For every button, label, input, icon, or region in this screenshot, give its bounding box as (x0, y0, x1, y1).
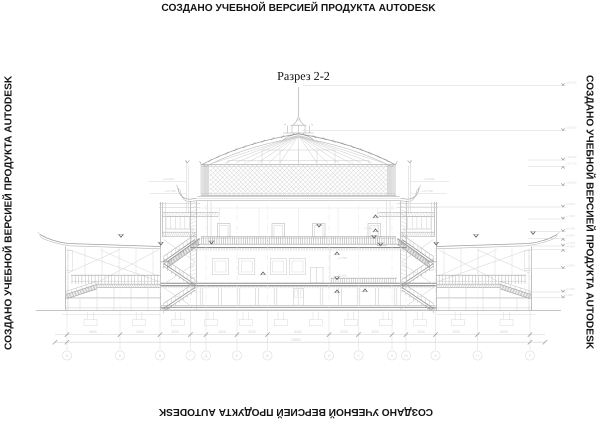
svg-text:И: И (328, 353, 331, 358)
svg-text:+7,400: +7,400 (566, 214, 576, 218)
svg-text:+12,750: +12,750 (164, 189, 176, 193)
svg-text:+21,000: +21,000 (566, 81, 577, 85)
svg-text:3200: 3200 (248, 330, 256, 334)
svg-text:+12,750: +12,750 (421, 189, 433, 193)
svg-text:29890: 29890 (291, 338, 300, 342)
svg-text:+8,600: +8,600 (566, 202, 576, 206)
svg-text:К: К (357, 353, 360, 358)
svg-text:5690: 5690 (500, 330, 508, 334)
svg-text:3300: 3300 (218, 330, 226, 334)
svg-text:Е: Е (236, 353, 239, 358)
svg-text:Б: Б (119, 353, 122, 358)
svg-text:+5,450: +5,450 (566, 234, 576, 238)
svg-text:+4,750: +4,750 (337, 256, 347, 260)
svg-text:Д: Д (205, 353, 208, 358)
svg-text:П: П (476, 353, 479, 358)
svg-text:Р: Р (529, 353, 532, 358)
svg-text:+0,150: +0,150 (566, 287, 576, 291)
svg-text:В: В (159, 353, 162, 358)
svg-text:+10,850: +10,850 (566, 181, 577, 185)
svg-text:+3,300: +3,300 (337, 274, 347, 278)
svg-text:СОЗДАНО УЧЕБНОЙ ВЕРСИЕЙ ПРОДУК: СОЗДАНО УЧЕБНОЙ ВЕРСИЕЙ ПРОДУКТА AUTODES… (2, 75, 15, 350)
svg-text:+13,400: +13,400 (566, 155, 577, 159)
svg-text:4300: 4300 (136, 330, 144, 334)
svg-text:+6,150: +6,150 (566, 227, 576, 231)
svg-text:3300: 3300 (371, 330, 379, 334)
svg-text:+16,350: +16,350 (566, 126, 577, 130)
svg-text:+7,400: +7,400 (364, 227, 374, 231)
svg-text:СОЗДАНО УЧЕБНОЙ ВЕРСИЕЙ ПРОДУК: СОЗДАНО УЧЕБНОЙ ВЕРСИЕЙ ПРОДУКТА AUTODES… (584, 75, 597, 350)
svg-text:Г: Г (189, 353, 192, 358)
svg-text:+2,500: +2,500 (566, 264, 576, 268)
svg-text:+4,400: +4,400 (566, 245, 576, 249)
svg-text:СОЗДАНО УЧЕБНОЙ ВЕРСИЕЙ ПРОДУК: СОЗДАНО УЧЕБНОЙ ВЕРСИЕЙ ПРОДУКТА AUTODES… (161, 1, 436, 14)
svg-text:+2,200: +2,200 (425, 268, 435, 272)
svg-text:4300: 4300 (452, 330, 460, 334)
svg-text:А: А (66, 353, 69, 358)
svg-text:3200: 3200 (417, 330, 425, 334)
svg-text:6300: 6300 (294, 330, 302, 334)
svg-text:3200: 3200 (340, 330, 348, 334)
svg-text:Разрез 2-2: Разрез 2-2 (277, 69, 330, 83)
svg-text:Ж: Ж (266, 353, 270, 358)
svg-text:Л: Л (391, 353, 394, 358)
svg-text:3200: 3200 (171, 330, 179, 334)
svg-text:М: М (404, 353, 407, 358)
svg-text:СОЗДАНО УЧЕБНОЙ ВЕРСИЕЙ ПРОДУК: СОЗДАНО УЧЕБНОЙ ВЕРСИЕЙ ПРОДУКТА AUTODES… (158, 406, 433, 419)
svg-text:+13,400: +13,400 (162, 177, 174, 181)
svg-text:5690: 5690 (89, 330, 97, 334)
svg-text:Н: Н (434, 353, 437, 358)
svg-text:+13,400: +13,400 (423, 177, 435, 181)
svg-text:+12,750: +12,750 (566, 162, 577, 166)
svg-text:0,000: 0,000 (566, 293, 574, 297)
